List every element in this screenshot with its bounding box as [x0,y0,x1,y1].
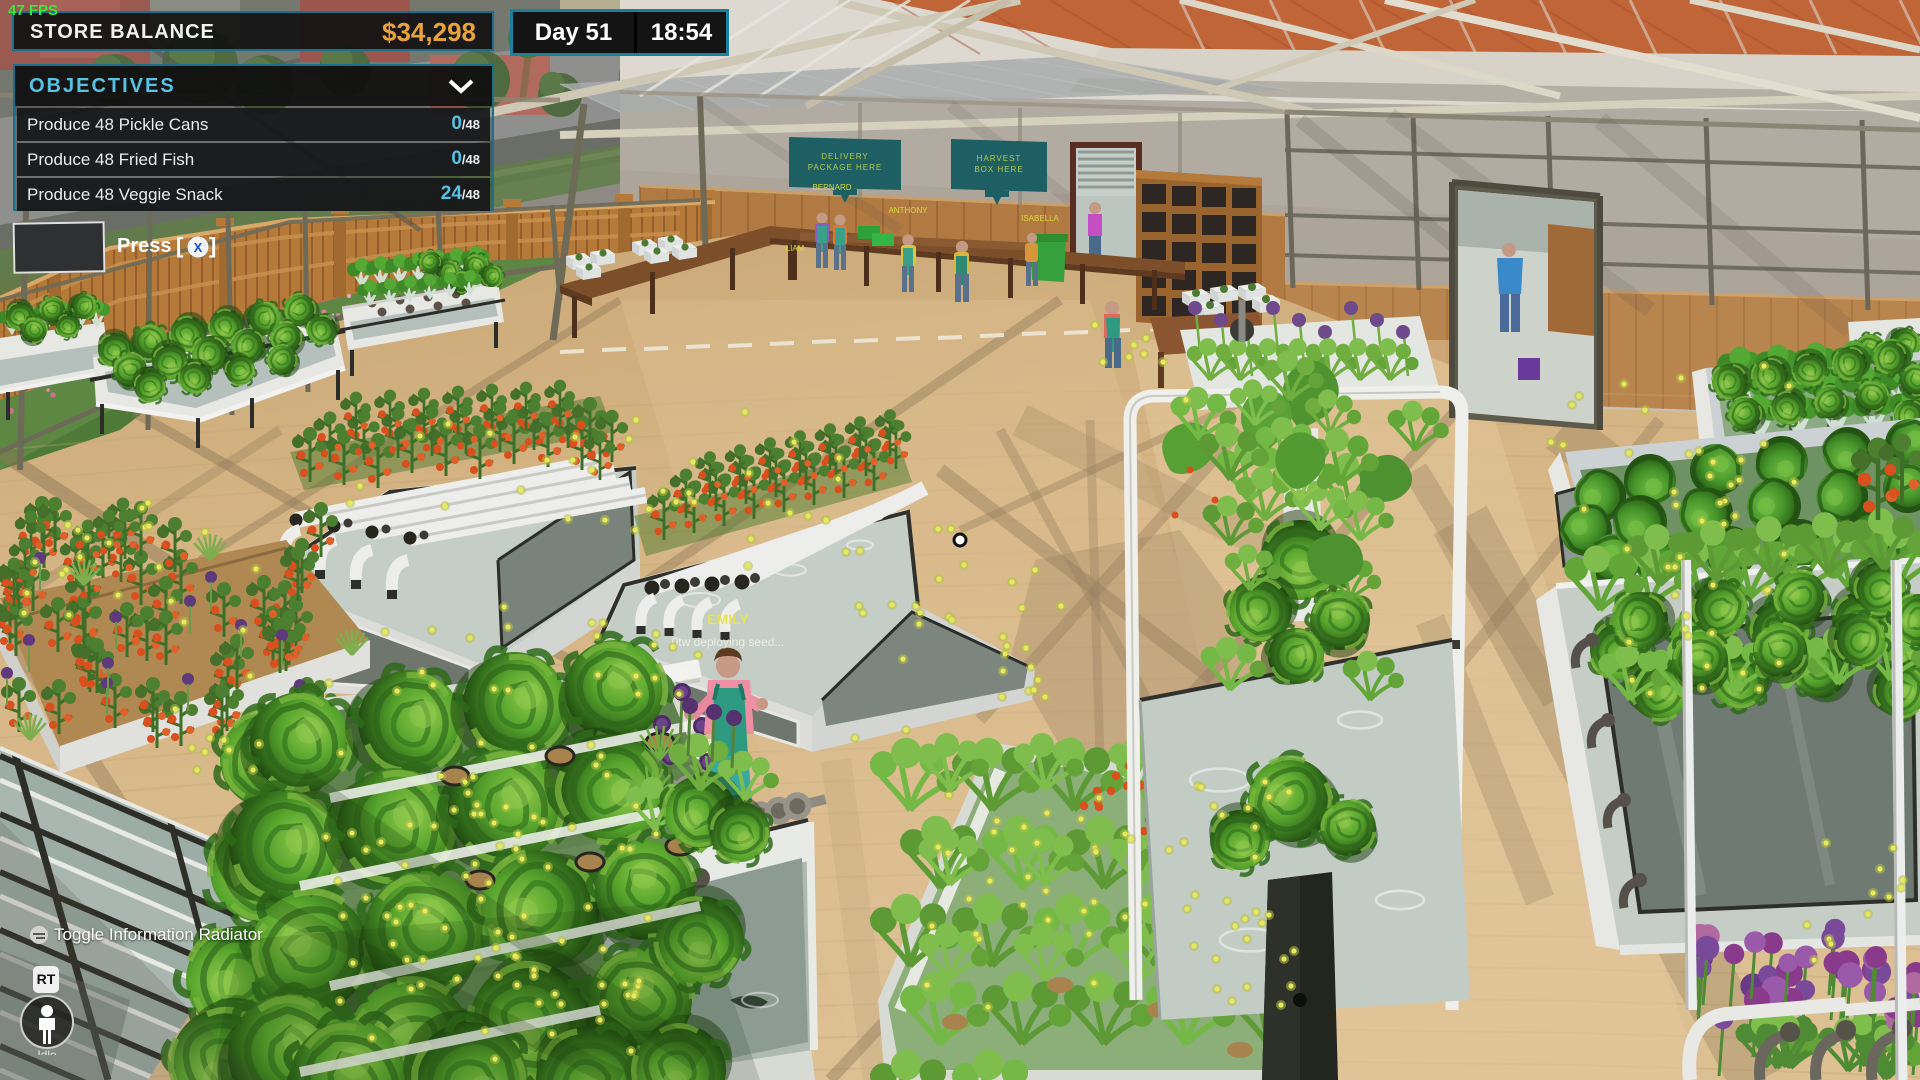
svg-text:Idle: Idle [37,1048,57,1055]
svg-text:BERNARD: BERNARD [812,183,851,192]
svg-text:ISABELLA: ISABELLA [1021,214,1059,223]
svg-text:PACKAGE HERE: PACKAGE HERE [808,163,883,172]
svg-text:BOX HERE: BOX HERE [974,165,1023,174]
svg-text:EMILY: EMILY [707,611,749,627]
svg-text:HARVEST: HARVEST [977,154,1022,163]
svg-text:X: X [194,240,203,255]
svg-text:0tw deploying seed...: 0tw deploying seed... [672,635,785,649]
svg-text:ANTHONY: ANTHONY [888,206,928,215]
svg-text:DELIVERY: DELIVERY [821,152,868,161]
svg-text:LIAM: LIAM [786,244,805,253]
